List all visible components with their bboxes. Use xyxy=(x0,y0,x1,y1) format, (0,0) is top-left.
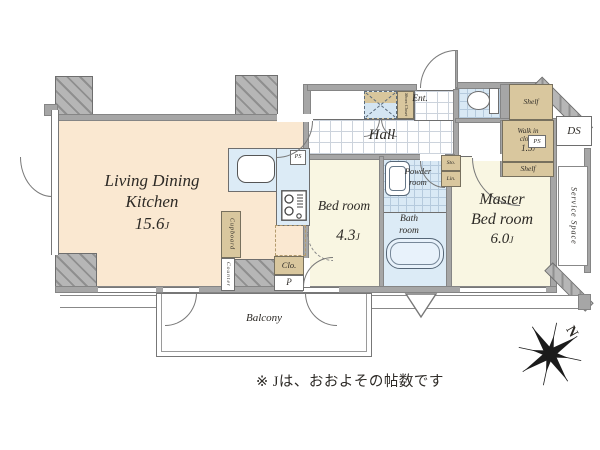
kitchen-sink xyxy=(237,155,275,183)
floor-plan: Balcony PS Cupboard Counter Clo. P Shoes… xyxy=(0,0,600,450)
window-ldk-south xyxy=(98,287,156,293)
stove xyxy=(281,190,307,221)
wall-top-hall xyxy=(307,84,417,91)
ps-box-closet: PS xyxy=(528,135,546,148)
wall-bedroom-bath xyxy=(379,156,384,290)
toilet-bowl xyxy=(467,91,490,110)
entrance-door-leaf xyxy=(455,50,458,88)
footnote: ※ Jは、おおよその帖数です xyxy=(256,370,444,391)
bathroom-label: Bath room xyxy=(386,214,432,238)
toilet-tank xyxy=(489,88,499,114)
shelf-top: Shelf xyxy=(509,84,553,120)
counter: Counter xyxy=(221,258,235,291)
window-left-wall xyxy=(51,110,59,255)
ldk-size: 15.6J xyxy=(62,213,242,234)
closet-box: Clo. xyxy=(274,256,304,275)
master-bedroom-label: Master Bed room 6.0J xyxy=(452,190,552,249)
wall-hall-right xyxy=(453,89,459,159)
awning-window-marker xyxy=(404,293,438,319)
ledge-right xyxy=(370,295,584,309)
bedroom-size: 4.3J xyxy=(318,226,378,245)
window-master-south xyxy=(460,287,546,293)
ldk-label: Living Dining Kitchen 15.6J xyxy=(62,170,242,234)
wall-top-ldk xyxy=(55,114,307,121)
service-space: Service Space xyxy=(558,166,588,266)
entrance-label: Ent. xyxy=(396,94,444,106)
bedroom-label: Bed room xyxy=(305,198,383,215)
ledge-left xyxy=(60,295,160,308)
pillar xyxy=(55,76,93,116)
powder-room-label: Powder room xyxy=(392,166,444,187)
left-window-arc xyxy=(20,157,52,197)
master-bedroom-size: 6.0J xyxy=(452,230,552,249)
overhead-storage xyxy=(364,91,397,119)
refrigerator-space xyxy=(275,225,306,256)
bathtub xyxy=(386,238,444,269)
pipe-box: P xyxy=(274,275,304,291)
duct-space: DS xyxy=(556,116,592,146)
ledge-end-cap xyxy=(578,294,591,310)
bathtub-inner xyxy=(390,242,440,265)
entrance-door-arc xyxy=(420,50,456,88)
hall-label: Hall xyxy=(352,126,412,145)
